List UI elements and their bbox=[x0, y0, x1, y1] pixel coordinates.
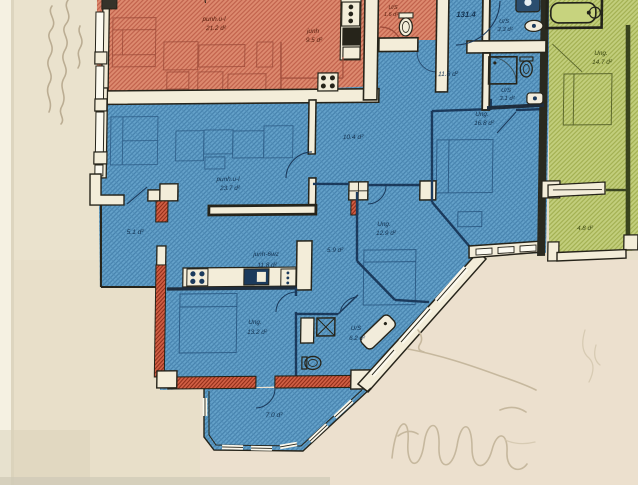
svg-text:3.3 d²: 3.3 d² bbox=[497, 27, 513, 33]
svg-text:3.1 d²: 3.1 d² bbox=[499, 96, 515, 102]
svg-text:6.2 d²: 6.2 d² bbox=[349, 335, 366, 342]
svg-text:junh-6wz: junh-6wz bbox=[252, 251, 279, 258]
svg-text:5.1 d²: 5.1 d² bbox=[127, 229, 145, 236]
svg-text:14.7 d²: 14.7 d² bbox=[592, 59, 613, 66]
svg-text:1.6 d²: 1.6 d² bbox=[384, 12, 400, 18]
svg-text:Ung.: Ung. bbox=[475, 111, 489, 118]
svg-text:23.7 d²: 23.7 d² bbox=[219, 185, 241, 192]
svg-text:Ung.: Ung. bbox=[594, 50, 608, 57]
svg-text:5.9 d²: 5.9 d² bbox=[327, 247, 344, 254]
svg-text:junh: junh bbox=[306, 28, 320, 35]
svg-text:Ung.: Ung. bbox=[377, 221, 391, 228]
svg-text:U/S: U/S bbox=[501, 88, 511, 94]
svg-text:punh.u-l: punh.u-l bbox=[215, 176, 240, 183]
svg-text:U/S: U/S bbox=[388, 5, 398, 11]
svg-text:9.5 d²: 9.5 d² bbox=[306, 37, 323, 44]
svg-text:11.8 d²: 11.8 d² bbox=[438, 71, 459, 78]
svg-text:7.0 d²: 7.0 d² bbox=[266, 412, 284, 419]
svg-text:16.8 d²: 16.8 d² bbox=[474, 120, 495, 127]
svg-text:21.2 d²: 21.2 d² bbox=[205, 25, 227, 32]
svg-text:11.8 d²: 11.8 d² bbox=[257, 262, 277, 269]
svg-text:4.8 d²: 4.8 d² bbox=[577, 225, 594, 232]
svg-text:10.4 d²: 10.4 d² bbox=[343, 134, 364, 141]
svg-text:U/S: U/S bbox=[499, 19, 509, 25]
svg-text:Ung.: Ung. bbox=[248, 319, 262, 326]
svg-text:punh.u-l: punh.u-l bbox=[201, 16, 226, 23]
svg-text:13.2 d²: 13.2 d² bbox=[247, 329, 268, 336]
svg-text:U/S: U/S bbox=[351, 325, 362, 332]
svg-text:12.9 d²: 12.9 d² bbox=[376, 230, 397, 237]
svg-text:131.4: 131.4 bbox=[456, 10, 476, 19]
